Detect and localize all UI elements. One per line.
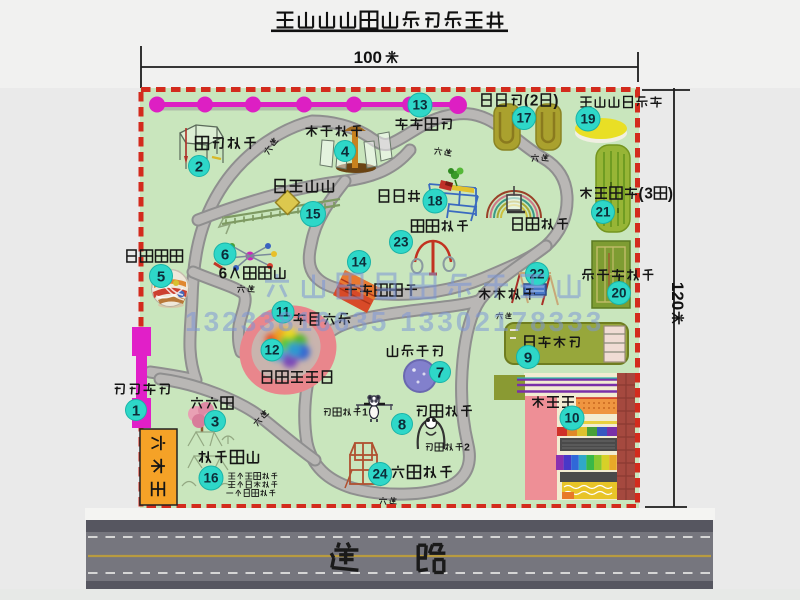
svg-text:13233816635 13302178333: 13233816635 13302178333: [185, 306, 604, 337]
svg-text:): ): [668, 185, 673, 202]
svg-text:6: 6: [221, 246, 229, 263]
svg-text:23: 23: [393, 235, 409, 250]
svg-text:1: 1: [362, 408, 368, 419]
svg-text:3: 3: [211, 413, 219, 430]
svg-text:7: 7: [436, 364, 444, 381]
svg-text:): ): [553, 92, 558, 109]
svg-text:9: 9: [524, 349, 532, 366]
svg-text:1: 1: [132, 402, 140, 419]
svg-text:19: 19: [580, 112, 595, 127]
svg-text:100: 100: [354, 48, 382, 67]
svg-text:14: 14: [351, 255, 367, 270]
svg-text:10: 10: [564, 411, 579, 426]
svg-text:13: 13: [412, 98, 428, 113]
svg-text:6: 6: [219, 265, 228, 282]
svg-text:18: 18: [427, 194, 443, 209]
svg-text:2: 2: [464, 443, 470, 454]
svg-text:20: 20: [611, 286, 626, 301]
svg-text:2: 2: [195, 158, 203, 175]
svg-text:(3: (3: [638, 185, 652, 202]
svg-text:15: 15: [305, 207, 321, 222]
svg-text:24: 24: [372, 467, 388, 482]
svg-text:17: 17: [516, 111, 531, 126]
svg-text:5: 5: [157, 268, 165, 285]
svg-text:120: 120: [668, 282, 687, 310]
svg-text:4: 4: [341, 143, 350, 160]
svg-text:16: 16: [203, 471, 219, 486]
svg-text:12: 12: [264, 343, 279, 358]
svg-text:21: 21: [595, 205, 611, 220]
svg-text:8: 8: [398, 416, 406, 433]
